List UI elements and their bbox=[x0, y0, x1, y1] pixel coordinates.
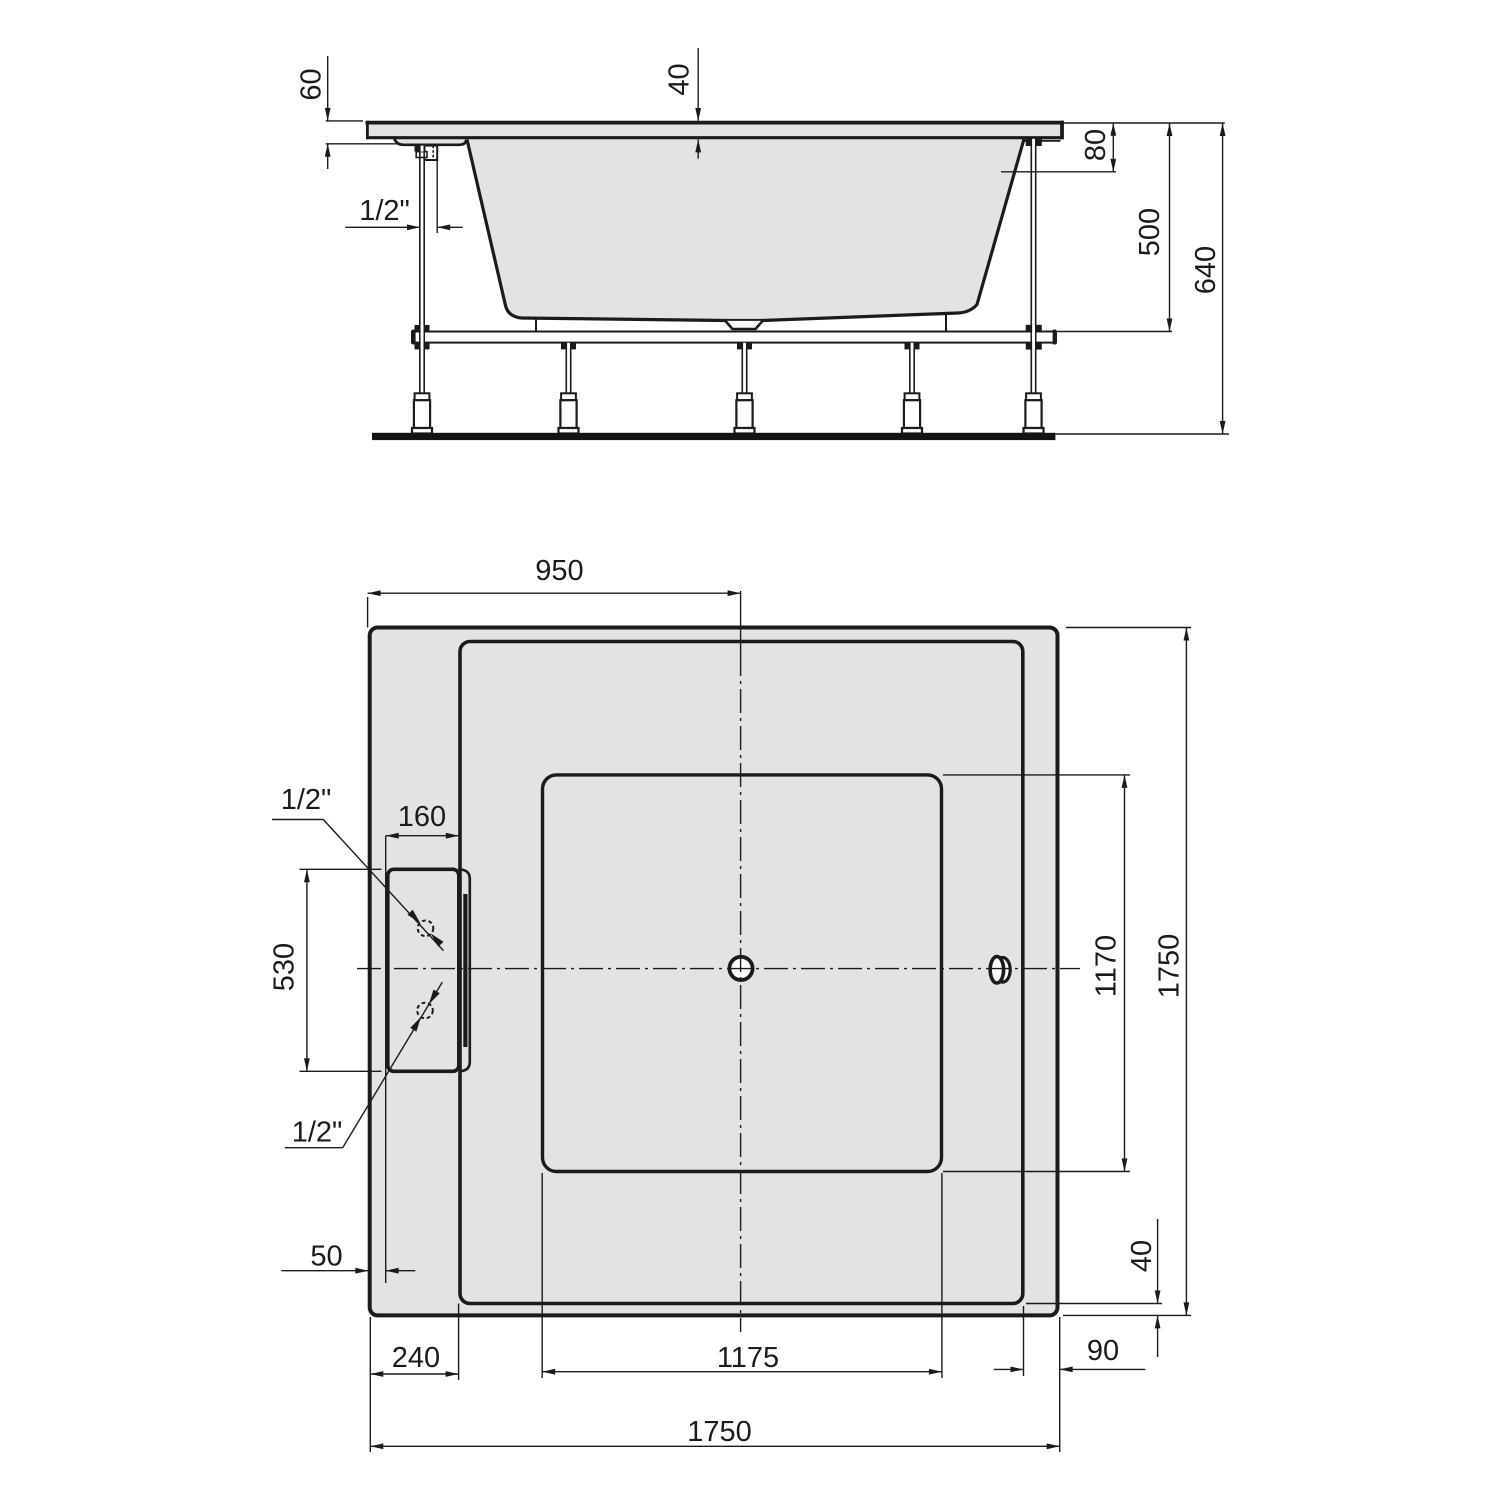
svg-text:1/2": 1/2" bbox=[281, 784, 332, 816]
svg-text:500: 500 bbox=[1134, 208, 1166, 256]
svg-text:530: 530 bbox=[269, 943, 301, 991]
svg-text:40: 40 bbox=[664, 63, 696, 95]
svg-text:40: 40 bbox=[1126, 1240, 1158, 1272]
svg-text:90: 90 bbox=[1087, 1335, 1119, 1367]
svg-text:640: 640 bbox=[1190, 246, 1222, 294]
svg-text:1/2": 1/2" bbox=[359, 195, 410, 227]
svg-text:1750: 1750 bbox=[687, 1416, 752, 1448]
svg-text:1175: 1175 bbox=[717, 1342, 779, 1374]
svg-text:80: 80 bbox=[1080, 129, 1112, 161]
svg-text:950: 950 bbox=[535, 555, 583, 587]
svg-text:1750: 1750 bbox=[1154, 934, 1186, 999]
svg-text:50: 50 bbox=[310, 1241, 342, 1273]
svg-text:240: 240 bbox=[392, 1342, 440, 1374]
svg-text:1/2": 1/2" bbox=[292, 1116, 343, 1148]
svg-text:60: 60 bbox=[296, 68, 328, 100]
svg-text:160: 160 bbox=[398, 801, 446, 833]
svg-text:1170: 1170 bbox=[1091, 935, 1123, 997]
